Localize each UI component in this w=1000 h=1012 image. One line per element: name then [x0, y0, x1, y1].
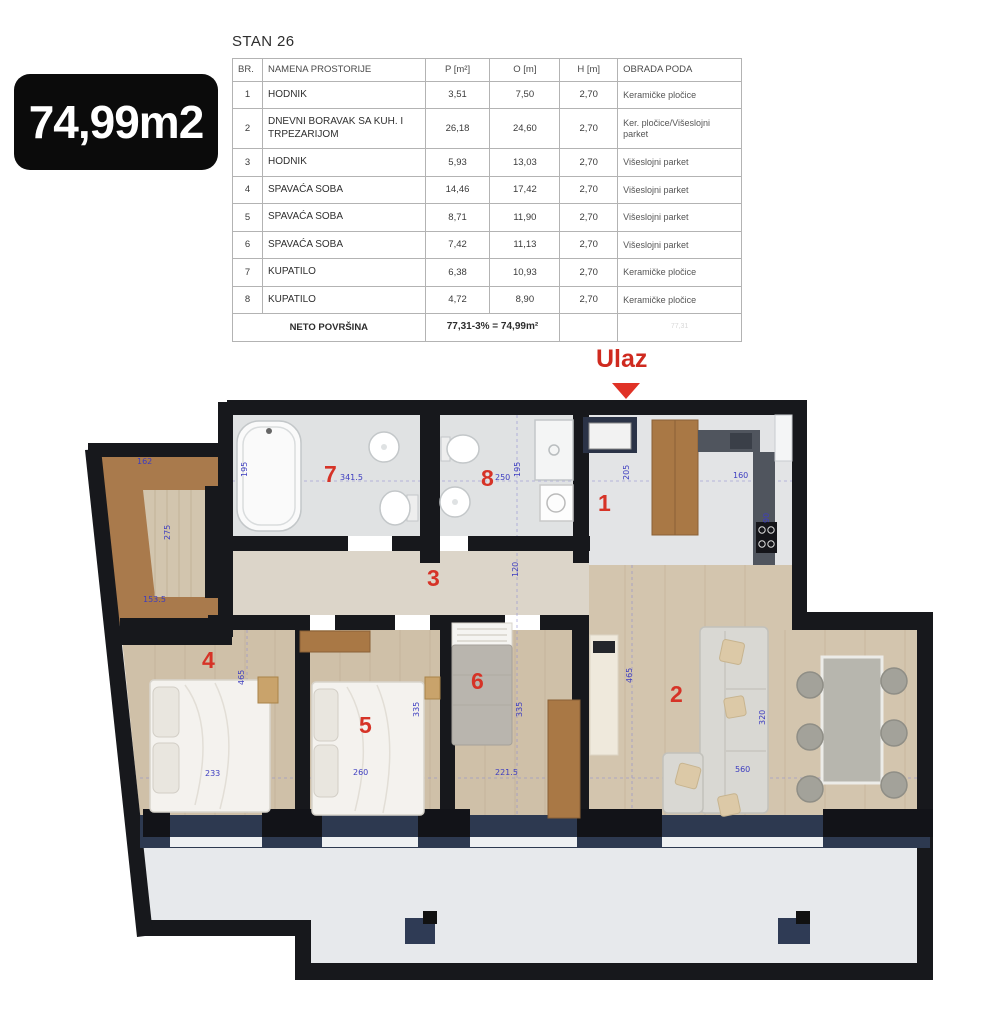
nightstand [425, 677, 440, 699]
neto-formula: 77,31-3% = 74,99m² [425, 314, 560, 342]
room-table: BR.NAMENA PROSTORIJEP [m²]O [m]H [m]OBRA… [232, 58, 742, 342]
table-cell: 2,70 [560, 231, 618, 259]
table-row: 6SPAVAĆA SOBA7,4211,132,70Višeslojni par… [233, 231, 742, 259]
toilet [380, 491, 418, 525]
table-header-cell: H [m] [560, 59, 618, 82]
corridor-3-floor [232, 551, 589, 615]
toilet [441, 435, 479, 463]
table-row: 1HODNIK3,517,502,70Keramičke pločice [233, 81, 742, 109]
table-cell: KUPATILO [262, 286, 425, 314]
table-cell: Ker. pločice/Višeslojni parket [618, 109, 742, 149]
table-cell: 24,60 [490, 109, 560, 149]
table-row: 7KUPATILO6,3810,932,70Keramičke pločice [233, 259, 742, 287]
room-schedule: BR.NAMENA PROSTORIJEP [m²]O [m]H [m]OBRA… [232, 58, 742, 342]
table-header-row: BR.NAMENA PROSTORIJEP [m²]O [m]H [m]OBRA… [233, 59, 742, 82]
table-cell: 4,72 [425, 286, 490, 314]
table-cell: 11,13 [490, 231, 560, 259]
sink [369, 432, 399, 462]
table-cell: Višeslojni parket [618, 149, 742, 177]
empty-cell [560, 314, 618, 342]
table-row: 5SPAVAĆA SOBA8,7111,902,70Višeslojni par… [233, 204, 742, 232]
table-cell: 11,90 [490, 204, 560, 232]
washing-machine [540, 485, 573, 521]
bed-single [452, 623, 512, 745]
hall-wardrobe [652, 420, 698, 535]
floor-plan-drawing [85, 345, 935, 1010]
table-cell: Višeslojni parket [618, 231, 742, 259]
entrance-label: Ulaz [596, 345, 647, 374]
area-badge: 74,99m2 [14, 74, 218, 170]
table-cell: 2,70 [560, 81, 618, 109]
entrance-door [583, 417, 637, 453]
bedroom-5-wardrobe [300, 631, 370, 652]
stove [756, 522, 777, 553]
table-cell: 2,70 [560, 204, 618, 232]
table-cell: Višeslojni parket [618, 204, 742, 232]
table-cell: 14,46 [425, 176, 490, 204]
table-cell: 13,03 [490, 149, 560, 177]
table-cell: 3 [233, 149, 263, 177]
table-row: 3HODNIK5,9313,032,70Višeslojni parket [233, 149, 742, 177]
table-cell: KUPATILO [262, 259, 425, 287]
table-cell: 5,93 [425, 149, 490, 177]
bed-double [312, 682, 424, 815]
table-cell: 2,70 [560, 259, 618, 287]
room-table-head: BR.NAMENA PROSTORIJEP [m²]O [m]H [m]OBRA… [233, 59, 742, 82]
room-table-foot: NETO POVRŠINA 77,31-3% = 74,99m² 77,31 [233, 314, 742, 342]
sink [440, 487, 470, 517]
area-badge-label: 74,99m2 [29, 95, 204, 149]
table-cell: 8,90 [490, 286, 560, 314]
table-header-cell: O [m] [490, 59, 560, 82]
table-cell: 2 [233, 109, 263, 149]
table-row: 8KUPATILO4,728,902,70Keramičke pločice [233, 286, 742, 314]
table-cell: 3,51 [425, 81, 490, 109]
table-cell: SPAVAĆA SOBA [262, 231, 425, 259]
bed-double [150, 680, 270, 812]
table-cell: HODNIK [262, 149, 425, 177]
table-cell: Keramičke pločice [618, 259, 742, 287]
shower [535, 420, 573, 480]
table-cell: 26,18 [425, 109, 490, 149]
page-title: STAN 26 [232, 33, 295, 50]
table-cell: 5 [233, 204, 263, 232]
table-cell: 2,70 [560, 109, 618, 149]
table-cell: 7,50 [490, 81, 560, 109]
dining-table [822, 657, 882, 783]
table-header-cell: NAMENA PROSTORIJE [262, 59, 425, 82]
terrace-floor [128, 848, 930, 963]
table-cell: SPAVAĆA SOBA [262, 176, 425, 204]
table-row: 4SPAVAĆA SOBA14,4617,422,70Višeslojni pa… [233, 176, 742, 204]
room-table-body: 1HODNIK3,517,502,70Keramičke pločice2DNE… [233, 81, 742, 314]
table-header-cell: OBRADA PODA [618, 59, 742, 82]
table-cell: HODNIK [262, 81, 425, 109]
table-header-cell: P [m²] [425, 59, 490, 82]
table-cell: 8,71 [425, 204, 490, 232]
table-footer-row: NETO POVRŠINA 77,31-3% = 74,99m² 77,31 [233, 314, 742, 342]
tv-stand [590, 635, 618, 755]
nightstand [258, 677, 278, 703]
neto-label: NETO POVRŠINA [233, 314, 426, 342]
table-cell: Keramičke pločice [618, 81, 742, 109]
floor-plan: 78134562162275153.5341.51952501952051609… [85, 345, 935, 1010]
table-cell: DNEVNI BORAVAK SA KUH. I TRPEZARIJOM [262, 109, 425, 149]
table-cell: 4 [233, 176, 263, 204]
table-cell: Višeslojni parket [618, 176, 742, 204]
table-row: 2DNEVNI BORAVAK SA KUH. I TRPEZARIJOM26,… [233, 109, 742, 149]
table-cell: 2,70 [560, 149, 618, 177]
table-cell: 10,93 [490, 259, 560, 287]
table-cell: SPAVAĆA SOBA [262, 204, 425, 232]
table-cell: 17,42 [490, 176, 560, 204]
table-cell: 6,38 [425, 259, 490, 287]
bathtub [237, 421, 301, 531]
table-cell: 7 [233, 259, 263, 287]
table-cell: 2,70 [560, 176, 618, 204]
bedroom-6-wardrobe [548, 700, 580, 818]
table-cell: 7,42 [425, 231, 490, 259]
table-header-cell: BR. [233, 59, 263, 82]
ghost-value: 77,31 [618, 314, 742, 342]
entrance-arrow-icon [612, 383, 640, 399]
table-cell: 2,70 [560, 286, 618, 314]
table-cell: 6 [233, 231, 263, 259]
table-cell: 1 [233, 81, 263, 109]
table-cell: 8 [233, 286, 263, 314]
table-cell: Keramičke pločice [618, 286, 742, 314]
